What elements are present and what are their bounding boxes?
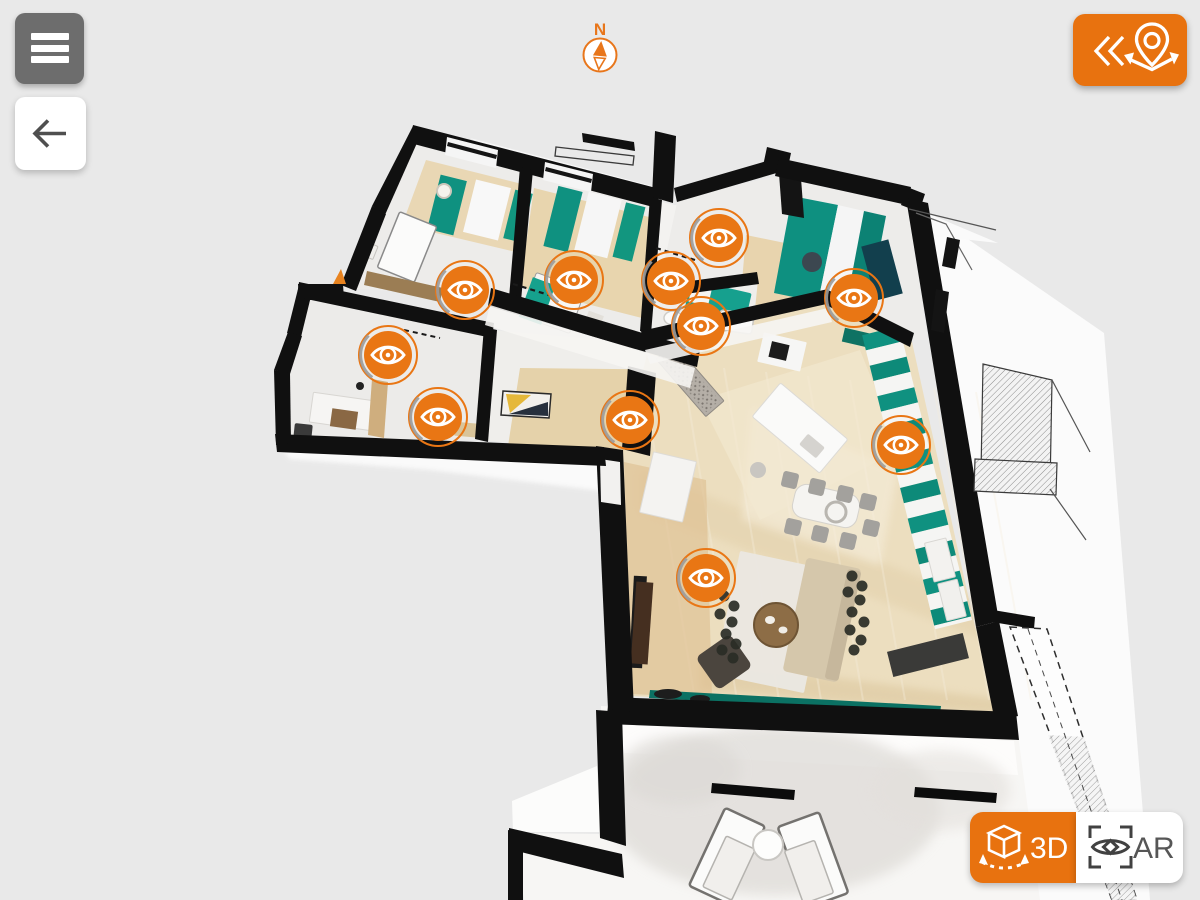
- svg-text:N: N: [594, 20, 606, 39]
- svg-text:3D: 3D: [1030, 832, 1068, 865]
- svg-text:AR: AR: [1133, 832, 1175, 865]
